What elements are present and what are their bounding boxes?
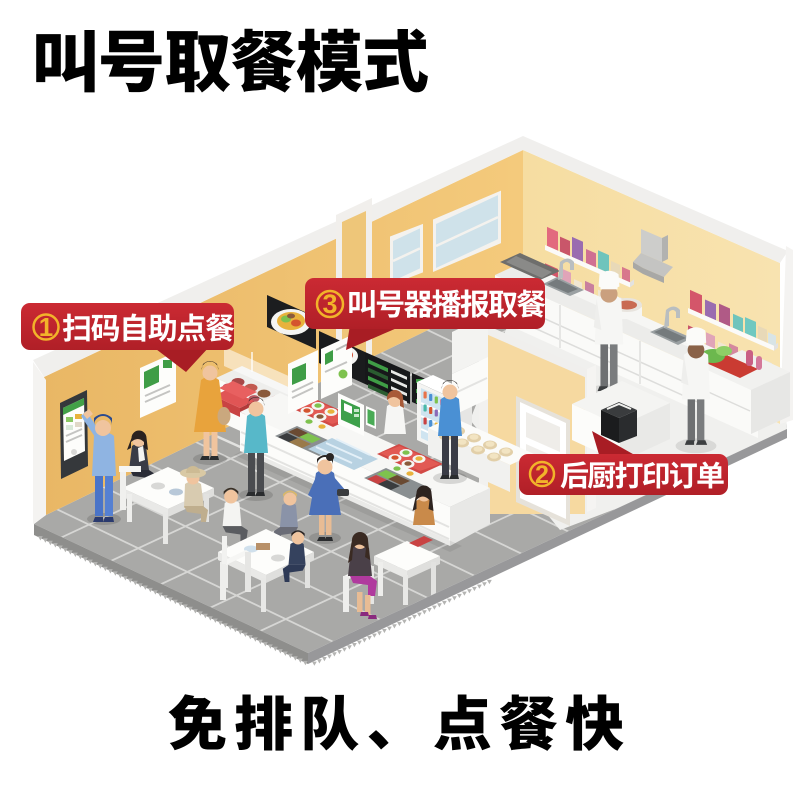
svg-text:2: 2 — [535, 461, 549, 489]
svg-text:3: 3 — [322, 289, 337, 319]
svg-text:1: 1 — [39, 312, 53, 342]
